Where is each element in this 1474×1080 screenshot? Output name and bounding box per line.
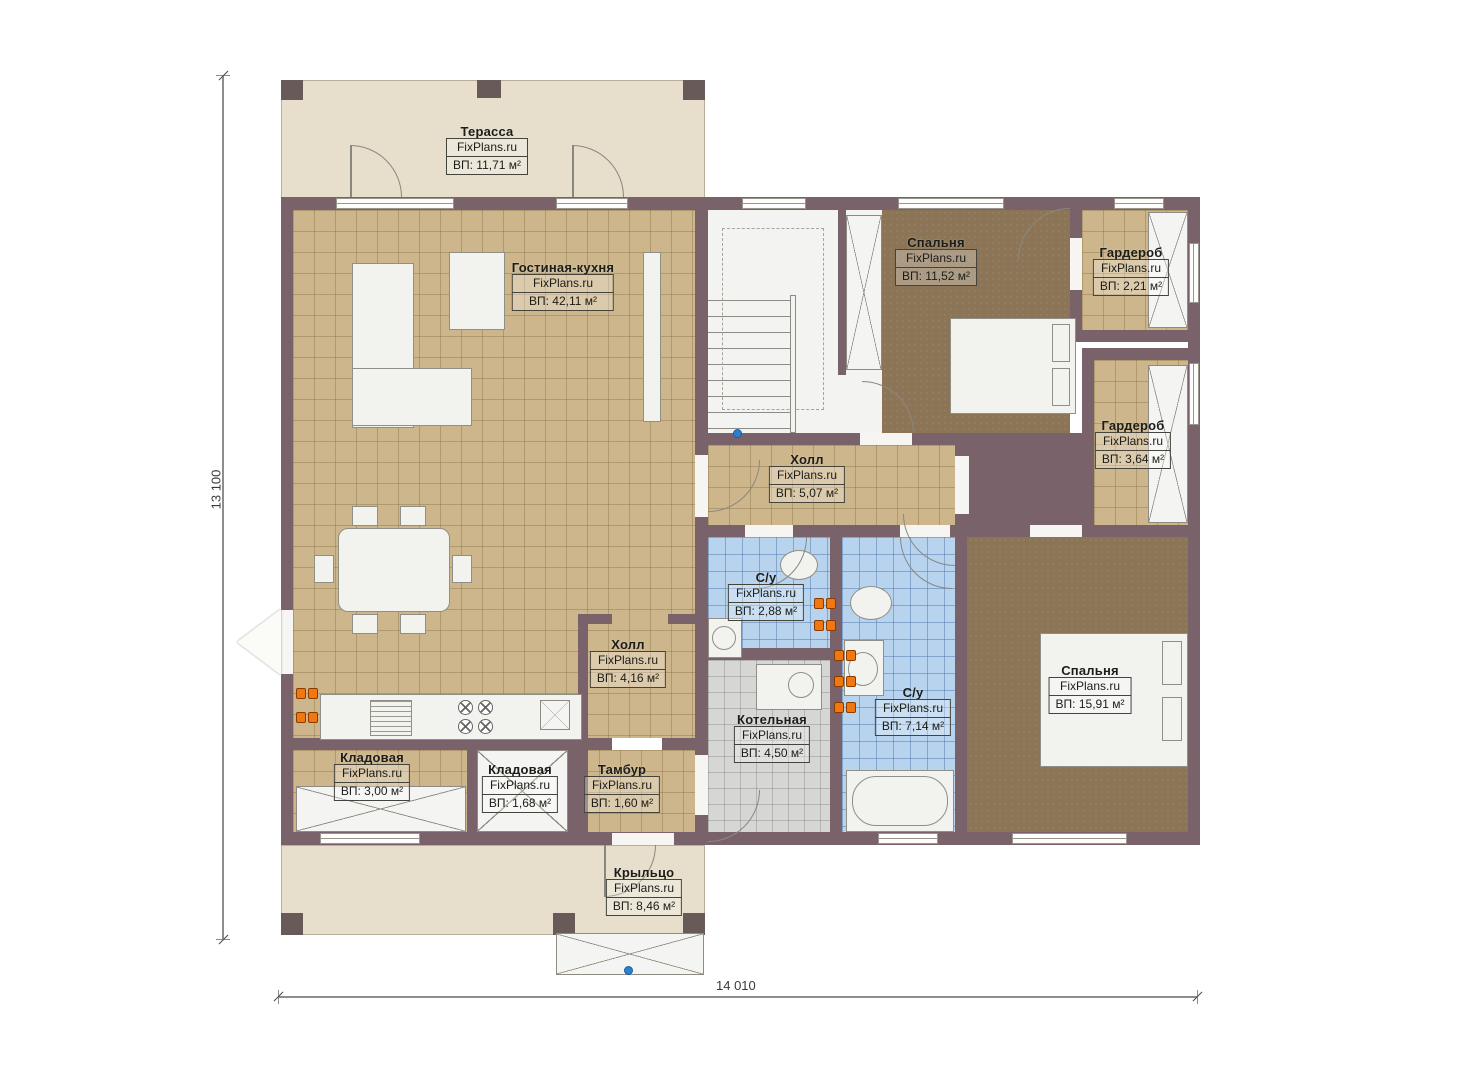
terrace-door2-leaf (572, 145, 574, 197)
room-label-porch: Крыльцо FixPlans.ru ВП: 8,46 м² (606, 865, 682, 916)
room-area: ВП: 3,00 м² (334, 782, 410, 801)
room-label-vestibule: Тамбур FixPlans.ru ВП: 1,60 м² (584, 762, 660, 813)
dimension-value-vertical: 13 100 (208, 470, 223, 510)
brand-watermark: FixPlans.ru (1049, 677, 1132, 696)
room-label-boiler: Котельная FixPlans.ru ВП: 4,50 м² (734, 712, 810, 763)
room-area: ВП: 42,11 м² (512, 292, 614, 311)
washbasin (712, 626, 736, 650)
wall-vestibule-top-a (588, 738, 612, 750)
wall-wardrobe1-bottom (1070, 330, 1200, 342)
boiler-drum (788, 672, 814, 698)
brand-watermark: FixPlans.ru (895, 249, 977, 268)
room-area: ВП: 3,64 м² (1095, 450, 1171, 469)
brand-watermark: FixPlans.ru (1093, 259, 1169, 278)
stairs-window (742, 198, 806, 209)
room-label-bath1: С/у FixPlans.ru ВП: 2,88 м² (728, 570, 804, 621)
terrace-door-leaf (350, 145, 352, 197)
bath2-window (878, 833, 938, 844)
room-area: ВП: 8,46 м² (606, 897, 682, 916)
room-area: ВП: 4,16 м² (590, 669, 666, 688)
wardrobe1-window (1114, 198, 1164, 209)
toilet (850, 586, 892, 620)
stove-burner (478, 700, 493, 715)
room-label-storage1: Кладовая FixPlans.ru ВП: 3,00 м² (334, 750, 410, 801)
dining-table (338, 528, 450, 612)
terrace-post (281, 80, 303, 100)
wall-bath1-right (830, 537, 842, 845)
terrace-post (477, 80, 501, 98)
room-label-bedroom2: Спальня FixPlans.ru ВП: 15,91 м² (1049, 663, 1132, 714)
porch-post (553, 913, 575, 935)
radiator (834, 676, 856, 687)
room-name: Котельная (734, 712, 810, 727)
room-area: ВП: 2,21 м² (1093, 277, 1169, 296)
chair (400, 506, 426, 526)
dishwasher (370, 700, 412, 736)
boiler-door-opening (695, 755, 708, 815)
pillow (1052, 324, 1070, 362)
stove-burner (458, 719, 473, 734)
chair (352, 506, 378, 526)
stove-burner (478, 719, 493, 734)
room-label-hall1: Холл FixPlans.ru ВП: 5,07 м² (769, 452, 845, 503)
wall-storage-divider1 (467, 738, 477, 845)
left-door-opening (281, 610, 293, 674)
room-name: Спальня (895, 235, 977, 250)
storage1-window (320, 833, 420, 844)
room-area: ВП: 2,88 м² (728, 602, 804, 621)
room-name: Холл (590, 637, 666, 652)
terrace-window (556, 198, 628, 209)
terrace-door-opening (336, 198, 454, 209)
brand-watermark: FixPlans.ru (446, 138, 528, 157)
room-name: С/у (875, 685, 951, 700)
chair (352, 614, 378, 634)
entry-marker-dot (624, 966, 633, 975)
room-label-living-kitchen: Гостиная-кухня FixPlans.ru ВП: 42,11 м² (512, 260, 614, 311)
brand-watermark: FixPlans.ru (334, 764, 410, 783)
dimension-value-horizontal: 14 010 (716, 978, 756, 993)
room-label-wardrobe2: Гардероб FixPlans.ru ВП: 3,64 м² (1095, 418, 1171, 469)
stair-marker-dot (733, 429, 742, 438)
brand-watermark: FixPlans.ru (734, 726, 810, 745)
chair (400, 614, 426, 634)
room-name: Тамбур (584, 762, 660, 777)
room-name: Гардероб (1095, 418, 1171, 433)
room-name: Холл (769, 452, 845, 467)
room-name: С/у (728, 570, 804, 585)
radiator (814, 620, 836, 631)
wall-stairs-bedroom (838, 210, 846, 375)
brand-watermark: FixPlans.ru (512, 274, 614, 293)
closet-corridor-block (955, 445, 1094, 537)
bath1-door-opening (745, 525, 793, 537)
room-name: Терасса (446, 124, 528, 139)
brand-watermark: FixPlans.ru (482, 776, 558, 795)
pillow (1162, 697, 1182, 741)
brand-watermark: FixPlans.ru (584, 776, 660, 795)
wall-storage-divider2 (568, 738, 578, 845)
wall-hall2-top-a (585, 614, 612, 624)
wall-bath2-right (955, 537, 967, 845)
room-label-wardrobe1: Гардероб FixPlans.ru ВП: 2,21 м² (1093, 245, 1169, 296)
sofa-chaise (352, 368, 472, 426)
brand-watermark: FixPlans.ru (606, 879, 682, 898)
stove-burner (458, 700, 473, 715)
room-label-terrace: Терасса FixPlans.ru ВП: 11,71 м² (446, 124, 528, 175)
porch-post (683, 913, 705, 935)
brand-watermark: FixPlans.ru (590, 651, 666, 670)
kitchen-sink (540, 700, 570, 730)
room-area: ВП: 15,91 м² (1049, 695, 1132, 714)
brand-watermark: FixPlans.ru (769, 466, 845, 485)
bedroom1-door-opening (860, 433, 912, 445)
wardrobe1-door-opening (1070, 238, 1082, 290)
chair (452, 555, 472, 583)
wall-hall2-top-b (668, 614, 695, 624)
terrace-post (683, 80, 705, 100)
radiator (834, 650, 856, 661)
room-name: Кладовая (334, 750, 410, 765)
porch-door-opening (612, 833, 674, 845)
stair-rail (790, 295, 796, 433)
stair-guide (722, 228, 824, 410)
room-label-bath2: С/у FixPlans.ru ВП: 7,14 м² (875, 685, 951, 736)
bathtub (852, 776, 948, 826)
corridor-door-opening (955, 456, 969, 514)
pillow (1162, 641, 1182, 685)
bedroom2-door-opening (1030, 525, 1082, 537)
pillow (1052, 368, 1070, 406)
left-exterior-door (237, 609, 281, 675)
room-label-storage2: Кладовая FixPlans.ru ВП: 1,68 м² (482, 762, 558, 813)
bedroom1-window (898, 198, 1004, 209)
built-in-wardrobe (846, 215, 882, 370)
room-area: ВП: 1,68 м² (482, 794, 558, 813)
room-area: ВП: 11,71 м² (446, 156, 528, 175)
room-name: Гардероб (1093, 245, 1169, 260)
brand-watermark: FixPlans.ru (1095, 432, 1171, 451)
brand-watermark: FixPlans.ru (875, 699, 951, 718)
right-window-2 (1189, 363, 1199, 425)
room-name: Гостиная-кухня (512, 260, 614, 275)
room-area: ВП: 11,52 м² (895, 267, 977, 286)
wall-vestibule-top-b (662, 738, 695, 750)
room-name: Крыльцо (606, 865, 682, 880)
room-area: ВП: 7,14 м² (875, 717, 951, 736)
radiator (834, 702, 856, 713)
room-label-bedroom1: Спальня FixPlans.ru ВП: 11,52 м² (895, 235, 977, 286)
floor-plan-canvas: Терасса FixPlans.ru ВП: 11,71 м² Гостина… (0, 0, 1474, 1080)
wall-wardrobe2-top (1082, 348, 1200, 360)
radiator (296, 712, 318, 723)
right-window-1 (1189, 243, 1199, 303)
wall-center-vertical (695, 197, 708, 845)
room-label-hall2: Холл FixPlans.ru ВП: 4,16 м² (590, 637, 666, 688)
dimension-line-horizontal (278, 996, 1198, 998)
radiator (814, 598, 836, 609)
room-area: ВП: 4,50 м² (734, 744, 810, 763)
bedroom2-window (1012, 833, 1127, 844)
chair (314, 555, 334, 583)
kitchen-island (449, 252, 505, 330)
hall1-door-opening (695, 455, 708, 517)
room-area: ВП: 5,07 м² (769, 484, 845, 503)
room-name: Спальня (1049, 663, 1132, 678)
tv-unit (643, 252, 661, 422)
porch-post (281, 913, 303, 935)
radiator (296, 688, 318, 699)
room-area: ВП: 1,60 м² (584, 794, 660, 813)
brand-watermark: FixPlans.ru (728, 584, 804, 603)
room-name: Кладовая (482, 762, 558, 777)
